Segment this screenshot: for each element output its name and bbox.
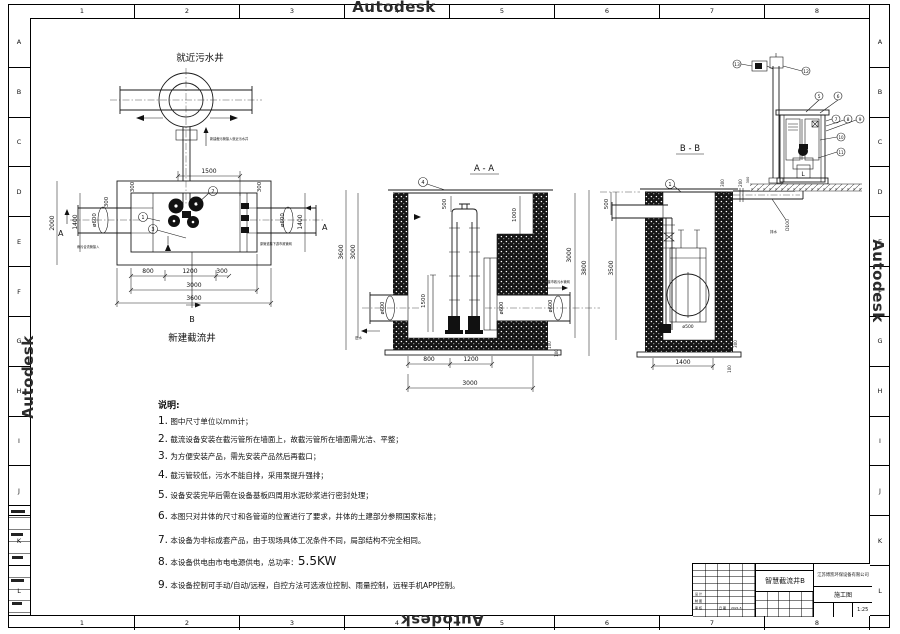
dim: ø600 (280, 213, 286, 227)
dim: 300 (104, 196, 110, 207)
title-block: 设 计 制 图 审 核 日 期 2021.5 智慧截流井B 江苏博凯环保设备有限… (692, 563, 870, 616)
note-text: 本设备控制可手动/自动/远程，自控方法可选液位控制、雨量控制，远程手机APP控制… (170, 581, 459, 590)
note-text: 截污管较低，污水不能自排，采用泵提升强排； (170, 471, 328, 480)
note-line: 5. 设备安装完毕后需在设备基板四周用水泥砂浆进行密封处理； (158, 487, 373, 501)
notes-block: 说明: 1. 图中尺寸单位以mm计； 2. 截流设备安装在截污管所在墙面上，故截… (158, 398, 503, 608)
dim: 1500 (201, 168, 216, 175)
note-line: 6. 本图只对井体的尺寸和各管道的位置进行了要求，井体的土建部分参照国家标准； (158, 508, 440, 522)
company-name: 江苏博凯环保设备有限公司 (814, 564, 872, 587)
note-number: 7. (158, 534, 168, 546)
note-line: 7. 本设备为非标成套产品，由于现场具体工况条件不同，局部结构不完全相同。 (158, 532, 425, 546)
annotation: 雨污合流管接入 (77, 244, 100, 249)
note-text: 本设备为非标成套产品，由于现场具体工况条件不同，局部结构不完全相同。 (170, 536, 425, 545)
drawing-stage: 施工图 (814, 587, 872, 603)
note-line: 3. 为方便安装产品，需先安装产品然后再截口； (158, 448, 320, 462)
callout-number: 8 (847, 117, 850, 123)
callout-number: 3 (151, 227, 154, 233)
dim: ø600 (499, 302, 505, 315)
pipe-size-label: D100 (785, 219, 791, 231)
dim: ø600 (92, 213, 98, 227)
dim: 1000 (512, 208, 518, 222)
dim: 3600 (186, 295, 201, 302)
annotation: 新建截污管接入就近污水井 (210, 136, 248, 141)
note-line: 2. 截流设备安装在截污管所在墙面上，故截污管所在墙面需光洁、平整； (158, 431, 403, 445)
plan-view: 就近污水井 新建截流井 1500 2000 1400 300 300 300 ø… (49, 52, 328, 344)
dim: ø600 (548, 300, 554, 313)
note-line: 4. 截污管较低，污水不能自排，采用泵提升强排； (158, 467, 328, 481)
dim: 500 (442, 198, 448, 209)
dim: 1200 (463, 356, 478, 363)
empty-cell (814, 603, 834, 617)
dim: 3000 (186, 282, 201, 289)
flow-arrow-left (136, 115, 144, 121)
section-bb-title: B - B (680, 144, 700, 154)
dim: 200 (738, 179, 743, 187)
callout-number: 12 (803, 69, 809, 75)
signoff-grid (756, 592, 814, 617)
dim: 3000 (462, 380, 477, 387)
valve-size-label: ø500 (682, 324, 693, 330)
dim: 300 (720, 179, 725, 187)
dim: 3500 (608, 260, 615, 275)
drawing-title: 智慧截流井B (756, 570, 814, 592)
dim: 1200 (182, 268, 197, 275)
field-value: 2021.5 (731, 606, 742, 610)
section-marker-b: B (189, 315, 195, 324)
cabinet-l-mark: L (801, 171, 805, 178)
empty-cell (834, 603, 854, 617)
dim: 300 (746, 177, 750, 184)
dim: 800 (423, 356, 435, 363)
callout-number: 13 (734, 62, 740, 68)
section-bb: B - B 500 3500 1400 100 300 300 200 ø500… (600, 144, 803, 373)
callout-number: 5 (818, 94, 821, 100)
section-aa: A - A 500 1000 3600 3000 3000 3800 1500 … (338, 164, 600, 392)
callout-number: 1 (141, 215, 144, 221)
note-text: 设备安装完毕后需在设备基板四周用水泥砂浆进行密封处理； (170, 491, 373, 500)
dim: 500 (604, 198, 610, 209)
dim: 3800 (581, 260, 588, 275)
note-number: 4. (158, 469, 168, 481)
callout-number: 2 (211, 189, 214, 195)
dim: 3000 (566, 247, 573, 262)
dim: 300 (257, 181, 263, 192)
note-line: 8. 本设备供电由市电电源供电，总功率：5.5KW (158, 554, 336, 568)
dim: 1400 (297, 214, 304, 229)
scale-value: 1:25 (853, 603, 872, 617)
callout-number: 9 (859, 117, 862, 123)
plan-well-label: 就近污水井 (176, 52, 224, 64)
field-label: 日 期 (719, 606, 726, 610)
note-text: 本设备供电由市电电源供电，总功率： (170, 558, 298, 567)
note-text: 为方便安装产品，需先安装产品然后再截口； (170, 452, 320, 461)
dim: 1400 (675, 359, 690, 366)
dim: 1400 (72, 214, 79, 229)
note-number: 5. (158, 489, 168, 501)
note-text: 本图只对井体的尺寸和各管道的位置进行了要求，井体的土建部分参照国家标准； (170, 512, 440, 521)
note-number: 1. (158, 415, 168, 427)
section-aa-title: A - A (474, 164, 494, 174)
annotation: 进水 (355, 335, 363, 340)
dim: 3600 (338, 244, 345, 259)
section-marker-a: A (322, 223, 328, 232)
field-label: 设 计 (695, 592, 702, 596)
callout-number: 11 (838, 150, 844, 155)
note-line: 1. 图中尺寸单位以mm计； (158, 413, 253, 427)
title-block-center: 智慧截流井B (755, 564, 813, 617)
dim: 3000 (350, 244, 357, 259)
annotation: 排水管接市政污水管网 (538, 279, 570, 284)
callout-number: 1 (668, 182, 671, 188)
dim: 100 (727, 365, 732, 373)
flow-arrow-right (230, 115, 238, 121)
dim: 2000 (49, 215, 56, 230)
dim: 300 (130, 181, 136, 192)
dim: 100 (554, 349, 559, 357)
section-marker-a: A (58, 229, 64, 238)
note-text: 图中尺寸单位以mm计； (170, 417, 252, 426)
note-big-text: 5.5KW (298, 554, 336, 568)
dim: 800 (142, 268, 154, 275)
note-number: 9. (158, 579, 168, 591)
dim: 300 (733, 340, 738, 348)
note-number: 6. (158, 510, 168, 522)
revision-grid: 设 计 制 图 审 核 日 期 2021.5 (693, 564, 755, 617)
dim: 100 (547, 341, 552, 349)
note-number: 2. (158, 433, 168, 445)
dim: 1500 (421, 294, 427, 308)
notes-heading: 说明: (158, 398, 180, 411)
field-label: 审 核 (695, 606, 702, 610)
dim: ø600 (380, 302, 386, 315)
note-text: 截流设备安装在截污管所在墙面上，故截污管所在墙面需光洁、平整； (170, 435, 403, 444)
drawing-sheet: 1 2 3 4 5 6 7 8 1 2 3 4 5 6 7 8 A B C D … (0, 0, 900, 634)
title-block-right: 江苏博凯环保设备有限公司 施工图 1:25 (813, 564, 871, 617)
control-cabinet: 13 12 5 6 7 8 9 10 11 L 300 (733, 53, 864, 191)
plan-caption: 新建截流井 (168, 332, 216, 344)
field-label: 制 图 (695, 599, 702, 603)
note-line: 9. 本设备控制可手动/自动/远程，自控方法可选液位控制、雨量控制，远程手机AP… (158, 577, 460, 591)
callout-number: 6 (837, 94, 840, 100)
dim: 300 (216, 268, 228, 275)
callout-number: 10 (838, 135, 844, 140)
note-number: 8. (158, 556, 168, 568)
annotation: 排水 (770, 229, 778, 234)
note-number: 3. (158, 450, 168, 462)
title-block-bottom-row: 1:25 (814, 603, 872, 617)
callout-number: 7 (835, 117, 838, 123)
callout-number: 4 (421, 180, 424, 186)
annotation: 原管道接下游市政管网 (260, 241, 292, 246)
